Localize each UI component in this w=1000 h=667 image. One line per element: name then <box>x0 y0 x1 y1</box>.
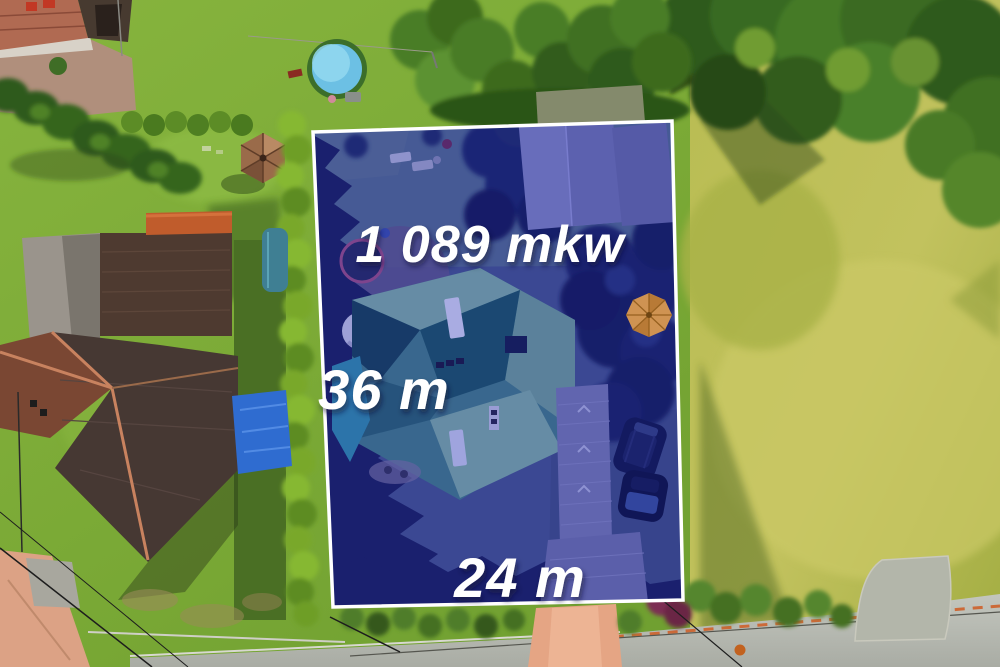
blue-tarp <box>232 390 292 474</box>
footpath-south <box>528 604 622 667</box>
depth-label: 36 m <box>318 358 450 421</box>
water-tank <box>262 228 288 292</box>
aerial-photo: 1 089 mkw 36 m 24 m <box>0 0 1000 667</box>
width-label: 24 m <box>453 546 586 609</box>
area-label: 1 089 mkw <box>355 216 627 274</box>
